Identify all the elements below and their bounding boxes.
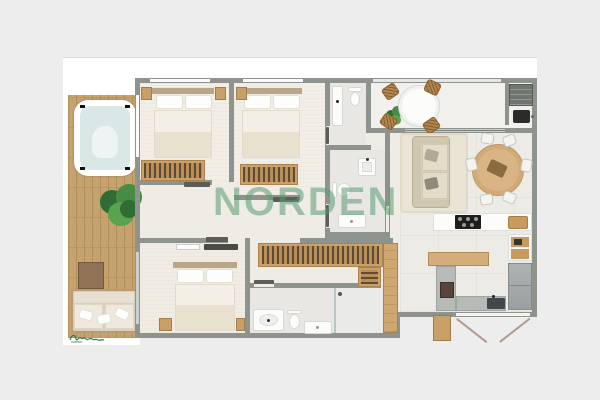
sofa-arm <box>413 137 449 144</box>
entry-threshold <box>456 313 530 316</box>
faucet-dot <box>492 295 495 298</box>
coffee-shelf <box>511 249 529 259</box>
bed-pillow <box>156 95 183 109</box>
artist-signature <box>68 331 110 344</box>
nightstand-icon <box>159 318 172 331</box>
shower-glass <box>334 288 336 333</box>
shower-room-floor <box>335 288 381 333</box>
wardrobe-clothes <box>262 246 379 264</box>
dresser-clothes <box>144 163 202 178</box>
burner-dot <box>458 217 462 221</box>
tv-icon <box>176 244 200 250</box>
sofa-arm <box>413 200 449 207</box>
faucet-dot <box>366 158 369 161</box>
drain-dot <box>316 326 319 329</box>
door-swing-icon <box>500 318 531 343</box>
nightstand-icon <box>215 87 226 100</box>
wardrobe-panel <box>383 243 398 333</box>
fridge-icon <box>508 263 532 310</box>
grill-icon <box>509 84 533 106</box>
watermark: NORDEN <box>213 180 413 224</box>
entry-door-icon <box>433 315 451 341</box>
bed-headboard <box>173 262 237 268</box>
burner-dot <box>466 217 470 221</box>
bath1-door-leaf <box>326 127 329 144</box>
bed-pillow <box>177 269 204 283</box>
oven-front <box>440 282 454 298</box>
toilet-bowl <box>350 92 360 106</box>
burner-dot <box>474 217 478 221</box>
bath3-door-leaf <box>254 280 274 284</box>
deck-sliding-door <box>136 252 139 324</box>
burner-dot <box>470 223 474 227</box>
bed-pillow <box>206 269 233 283</box>
bed-pillow <box>185 95 212 109</box>
kitchen-sink-icon <box>487 298 505 309</box>
bath-counter <box>332 86 343 126</box>
wall-bath1-terrace <box>366 83 371 133</box>
sofa-back <box>413 144 421 200</box>
bed-pillow <box>273 95 300 109</box>
faucet-dot <box>531 115 534 118</box>
coffee-machine <box>514 239 522 245</box>
window-bedroom2 <box>243 79 303 82</box>
shower-head-dot <box>338 292 342 296</box>
fridge-split <box>509 285 531 286</box>
bed-blanket <box>155 132 211 157</box>
toilet-bowl <box>289 314 300 329</box>
bed-headboard <box>240 88 302 94</box>
dining-chair-icon <box>479 193 493 206</box>
cutting-board <box>508 216 528 229</box>
wardrobe-return-clothes <box>361 270 378 284</box>
living-sliding-door-track <box>405 130 505 131</box>
bath3-door-gap <box>254 284 274 287</box>
hot-tub-jet <box>80 167 85 170</box>
floor-plan-render: NORDEN <box>0 0 600 400</box>
soundbar-icon <box>204 244 238 250</box>
wall-right <box>532 78 537 317</box>
hot-tub-jet <box>80 105 85 108</box>
side-cube-icon <box>78 262 104 289</box>
bed-headboard <box>152 88 214 94</box>
wall-bath1-bottom <box>330 145 371 150</box>
outdoor-sink-icon <box>513 110 530 123</box>
bed-blanket <box>176 305 234 330</box>
door-swing-icon <box>457 318 488 343</box>
kitchen-island-icon <box>428 252 489 266</box>
hot-tub-jet <box>125 105 130 108</box>
window-left-bedroom1 <box>136 95 139 157</box>
bed-pillow <box>244 95 271 109</box>
faucet-dot <box>267 319 270 322</box>
bedroom3-door <box>206 237 228 242</box>
burner-dot <box>462 223 466 227</box>
square-sink-basin <box>362 162 372 172</box>
outdoor-sofa-back <box>74 292 134 303</box>
wall-bottom-left <box>135 333 400 338</box>
bedroom1-door <box>184 182 210 187</box>
nightstand-icon <box>236 87 247 100</box>
hot-tub-seat <box>92 126 118 158</box>
nightstand-icon <box>141 87 152 100</box>
window-bedroom1 <box>150 79 210 82</box>
faucet-dot <box>336 100 339 103</box>
wall-bedroom1-bedroom2 <box>229 83 234 182</box>
dining-chair-icon <box>520 158 533 173</box>
dining-chair-icon <box>480 132 494 145</box>
bed-blanket <box>243 132 299 157</box>
hot-tub-jet <box>125 167 130 170</box>
nightstand-icon <box>236 318 245 331</box>
